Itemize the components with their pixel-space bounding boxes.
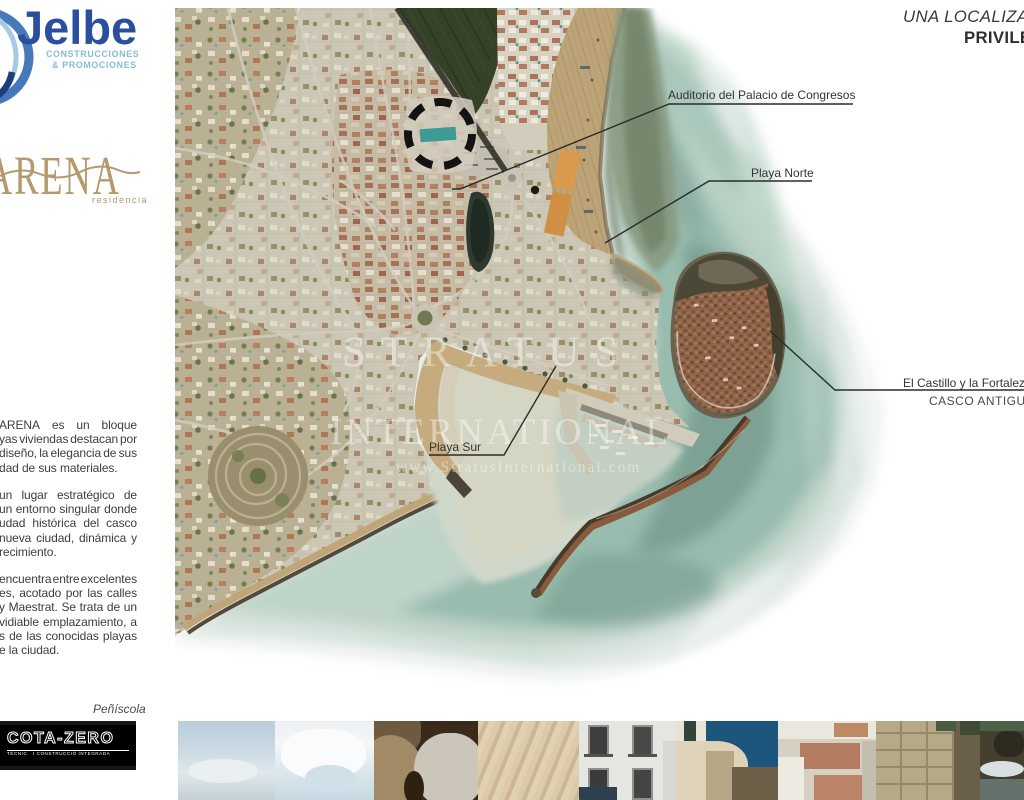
svg-text:www.StratusInternational.com: www.StratusInternational.com (396, 459, 641, 476)
svg-text:INTERNATIONAL: INTERNATIONAL (330, 412, 671, 453)
svg-text:STRATUS: STRATUS (342, 329, 633, 376)
